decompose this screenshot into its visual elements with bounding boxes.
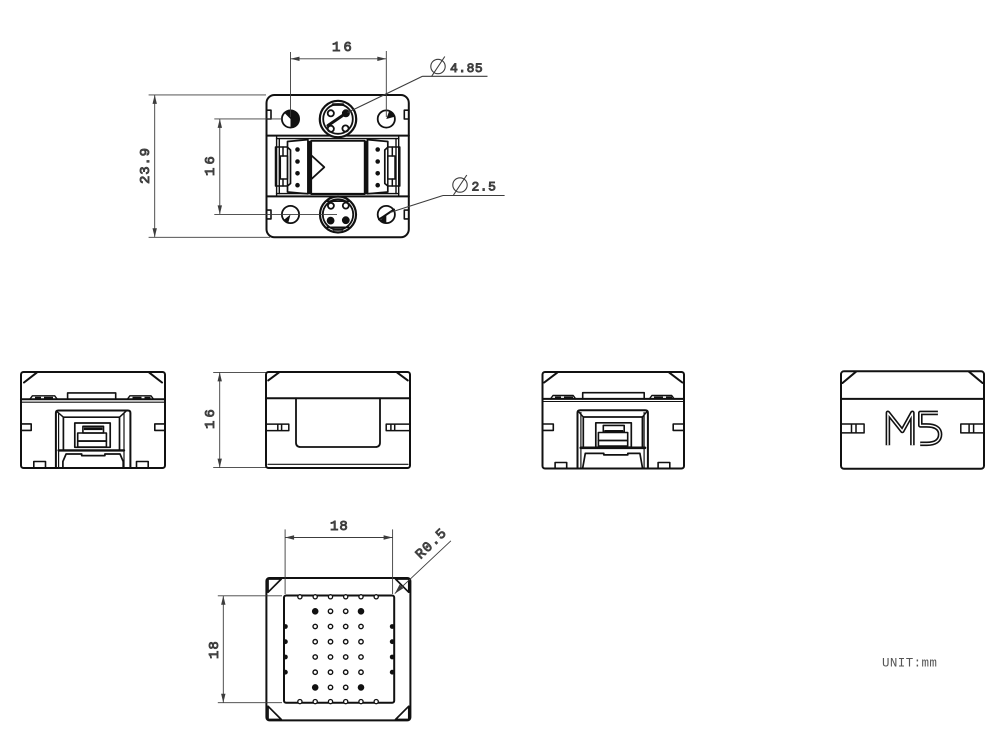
svg-text:4.85: 4.85 [450, 61, 483, 76]
svg-text:23.9: 23.9 [138, 147, 154, 184]
svg-text:16: 16 [203, 153, 219, 176]
svg-text:18: 18 [207, 640, 223, 659]
svg-text:18: 18 [330, 519, 349, 535]
svg-text:UNIT:mm: UNIT:mm [882, 657, 937, 671]
svg-text:16: 16 [332, 40, 355, 56]
svg-text:2.5: 2.5 [472, 180, 497, 195]
svg-text:16: 16 [203, 406, 219, 429]
